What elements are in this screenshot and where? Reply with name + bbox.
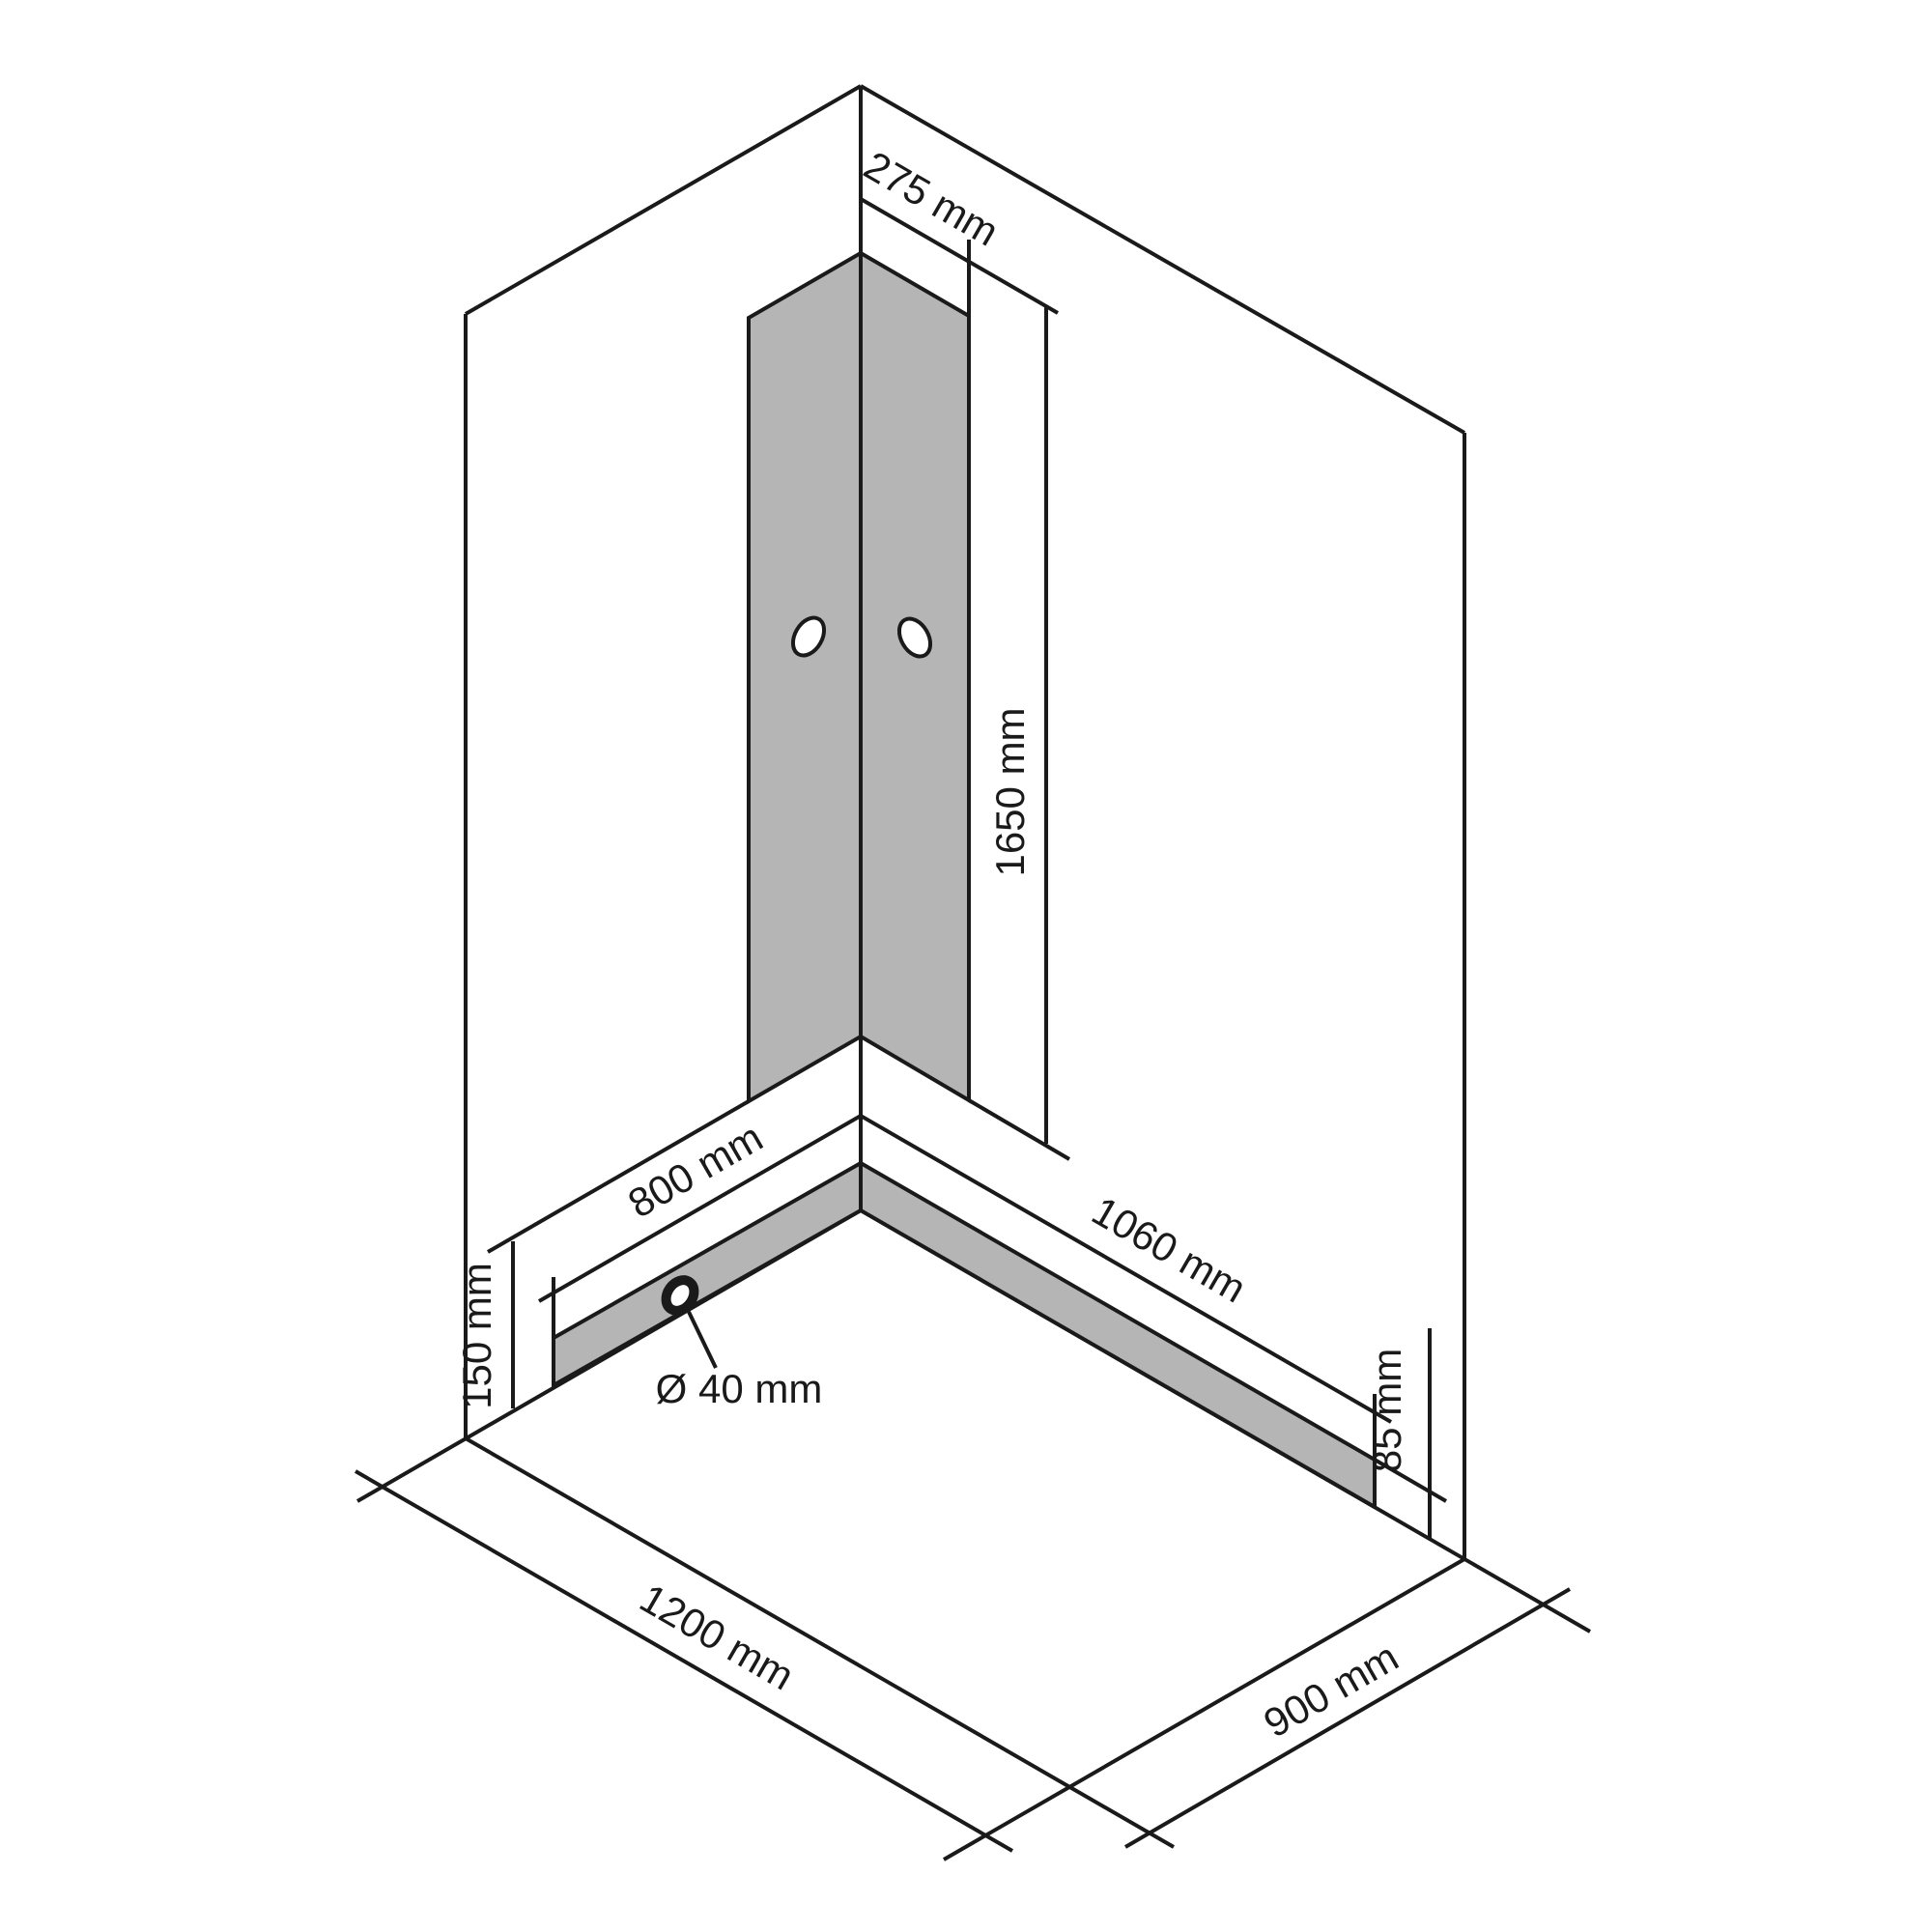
installation-diagram: 275 mm 1650 mm 800 mm 1060 mm 150 mm 85 … — [0, 0, 1932, 1932]
wall-panel-strip-left — [749, 253, 861, 1101]
dim-label-85: 85 mm — [1364, 1349, 1409, 1472]
wall-panel-strip-right — [861, 253, 969, 1100]
installation-diagram-page: 275 mm 1650 mm 800 mm 1060 mm 150 mm 85 … — [0, 0, 1932, 1932]
floor-front-left-edge — [466, 1438, 1174, 1847]
dim-line-1200 — [355, 1471, 1012, 1851]
dim-label-1650: 1650 mm — [987, 707, 1033, 876]
drain-leader-line — [689, 1312, 716, 1368]
floor-front-right-edge — [944, 1559, 1464, 1860]
left-wall-top-edge — [466, 86, 861, 314]
wall-panel-strips — [488, 253, 1069, 1252]
strip-bottom-extension-right-line — [969, 1100, 1069, 1159]
dim-label-drain-diameter: Ø 40 mm — [656, 1366, 823, 1411]
dim-label-150: 150 mm — [454, 1263, 499, 1409]
floor-outline — [357, 1210, 1590, 1860]
